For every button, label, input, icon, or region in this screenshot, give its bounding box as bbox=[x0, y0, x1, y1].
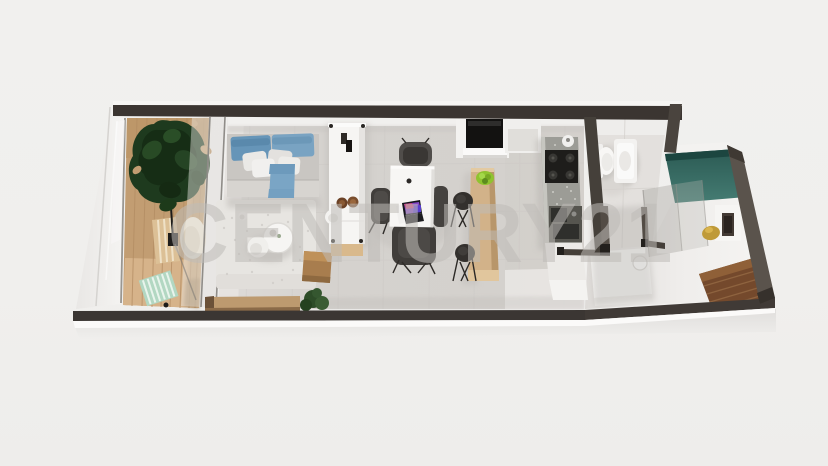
svg-text:CENTURY21: CENTURY21 bbox=[168, 186, 673, 280]
